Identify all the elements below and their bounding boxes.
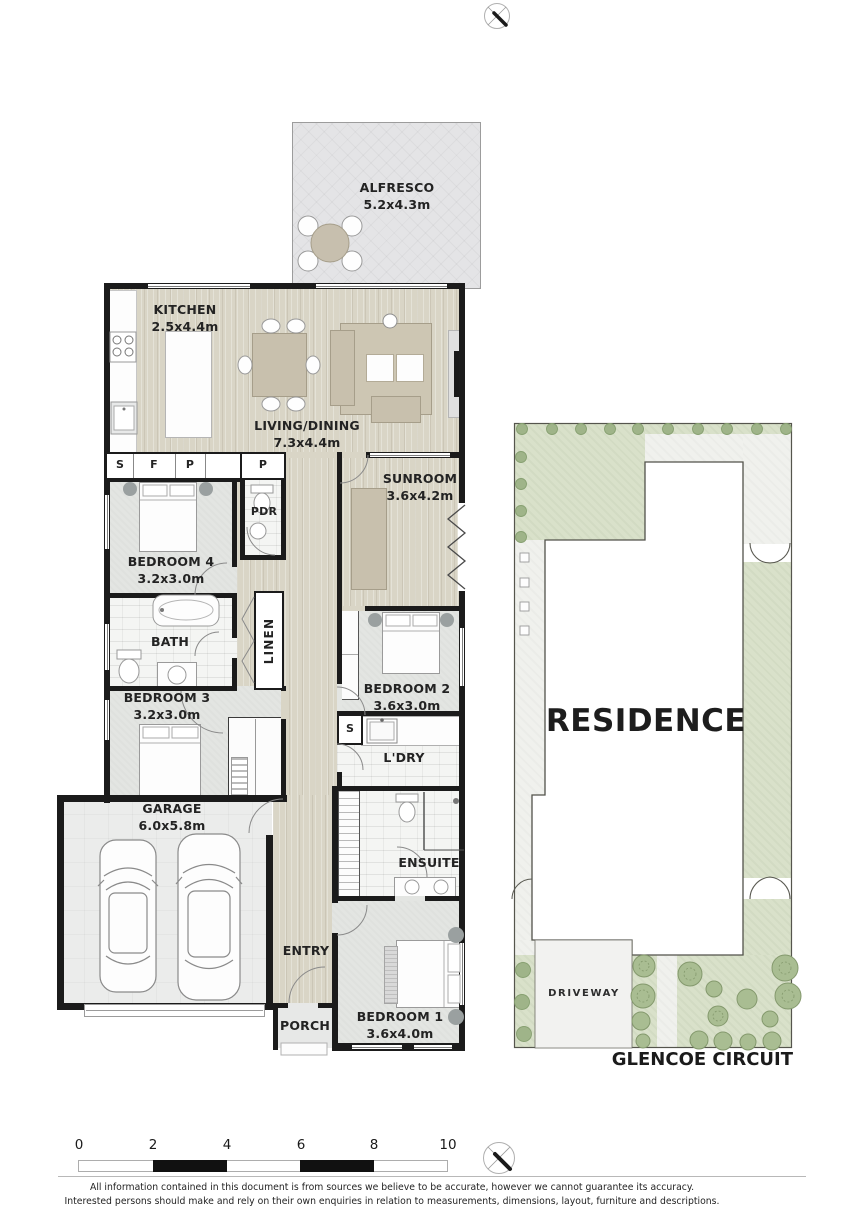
sunroom-label: SUNROOM 3.6x4.2m xyxy=(383,471,457,504)
bedroom3-label: BEDROOM 3 3.2x3.0m xyxy=(124,690,211,723)
linen-label: LINEN xyxy=(262,618,276,664)
alfresco-name: ALFRESCO xyxy=(360,180,435,197)
sunroom-dims: 3.6x4.2m xyxy=(383,488,457,505)
footer-divider xyxy=(58,1176,806,1177)
sunroom-name: SUNROOM xyxy=(383,471,457,488)
pdr-label: PDR xyxy=(251,506,277,518)
ensuite-label: ENSUITE xyxy=(398,855,459,872)
bedroom1-name: BEDROOM 1 xyxy=(357,1009,444,1026)
cupboard-s-label: S xyxy=(116,459,124,471)
driveway-label: DRIVEWAY xyxy=(548,988,620,999)
scale-tick-2: 2 xyxy=(149,1137,158,1153)
disclaimer-line2: Interested persons should make and rely … xyxy=(30,1195,754,1209)
north-compass-icon xyxy=(485,4,510,29)
cupboard-p2-label: P xyxy=(259,459,267,471)
garage-label: GARAGE 6.0x5.8m xyxy=(139,801,206,834)
bedroom4-label: BEDROOM 4 3.2x3.0m xyxy=(128,554,215,587)
living-dining-dims: 7.3x4.4m xyxy=(254,435,360,452)
laundry-store-label: S xyxy=(346,723,354,735)
kitchen-dims: 2.5x4.4m xyxy=(152,319,219,336)
porch-step xyxy=(281,1043,327,1055)
residence-label: RESIDENCE xyxy=(546,703,746,739)
living-dining-name: LIVING/DINING xyxy=(254,418,360,435)
car-1 xyxy=(98,840,158,992)
bedroom2-name: BEDROOM 2 xyxy=(364,681,451,698)
cupboard-f-label: F xyxy=(150,459,158,471)
bedroom4-dims: 3.2x3.0m xyxy=(128,571,215,588)
bifold-door-linen xyxy=(242,597,254,683)
laundry-fixtures xyxy=(367,718,397,743)
kitchen-label: KITCHEN 2.5x4.4m xyxy=(152,302,219,335)
scale-tick-0: 0 xyxy=(75,1137,84,1153)
scale-bar-segment-dark-1 xyxy=(153,1160,227,1172)
garage-dims: 6.0x5.8m xyxy=(139,818,206,835)
alfresco-table-set xyxy=(298,216,362,271)
scale-tick-6: 6 xyxy=(297,1137,306,1153)
living-lamp xyxy=(383,314,397,328)
floorplan-page: ALFRESCO 5.2x4.3m KITCHEN 2.5x4.4m LIVIN… xyxy=(0,0,863,1222)
scale-tick-8: 8 xyxy=(370,1137,379,1153)
disclaimer-line1: All information contained in this docume… xyxy=(30,1181,754,1195)
kitchen-fixtures xyxy=(110,332,137,434)
bedroom1-label: BEDROOM 1 3.6x4.0m xyxy=(357,1009,444,1042)
kitchen-name: KITCHEN xyxy=(152,302,219,319)
bedroom1-dims: 3.6x4.0m xyxy=(357,1026,444,1043)
bath-label: BATH xyxy=(151,634,189,651)
alfresco-dims: 5.2x4.3m xyxy=(360,197,435,214)
garage-name: GARAGE xyxy=(139,801,206,818)
cupboard-p1-label: P xyxy=(186,459,194,471)
car-2 xyxy=(176,834,242,1000)
bedroom4-name: BEDROOM 4 xyxy=(128,554,215,571)
scale-tick-4: 4 xyxy=(223,1137,232,1153)
entry-label: ENTRY xyxy=(283,943,330,960)
living-dining-label: LIVING/DINING 7.3x4.4m xyxy=(254,418,360,451)
bedroom2-dims: 3.6x3.0m xyxy=(364,698,451,715)
bedroom3-dims: 3.2x3.0m xyxy=(124,707,211,724)
scale-tick-10: 10 xyxy=(439,1137,456,1153)
laundry-label: L'DRY xyxy=(383,750,424,767)
ensuite-fixtures xyxy=(396,792,464,894)
porch-label: PORCH xyxy=(280,1018,330,1035)
street-label: GLENCOE CIRCUIT xyxy=(612,1049,793,1070)
bedroom2-label: BEDROOM 2 3.6x3.0m xyxy=(364,681,451,714)
scale-bar-segment-dark-2 xyxy=(300,1160,374,1172)
scale-compass-icon xyxy=(484,1143,515,1174)
dining-chairs xyxy=(238,319,320,411)
bifold-door-sunroom xyxy=(448,505,465,589)
alfresco-label: ALFRESCO 5.2x4.3m xyxy=(360,180,435,213)
scale-bar xyxy=(78,1160,448,1172)
bedroom3-name: BEDROOM 3 xyxy=(124,690,211,707)
